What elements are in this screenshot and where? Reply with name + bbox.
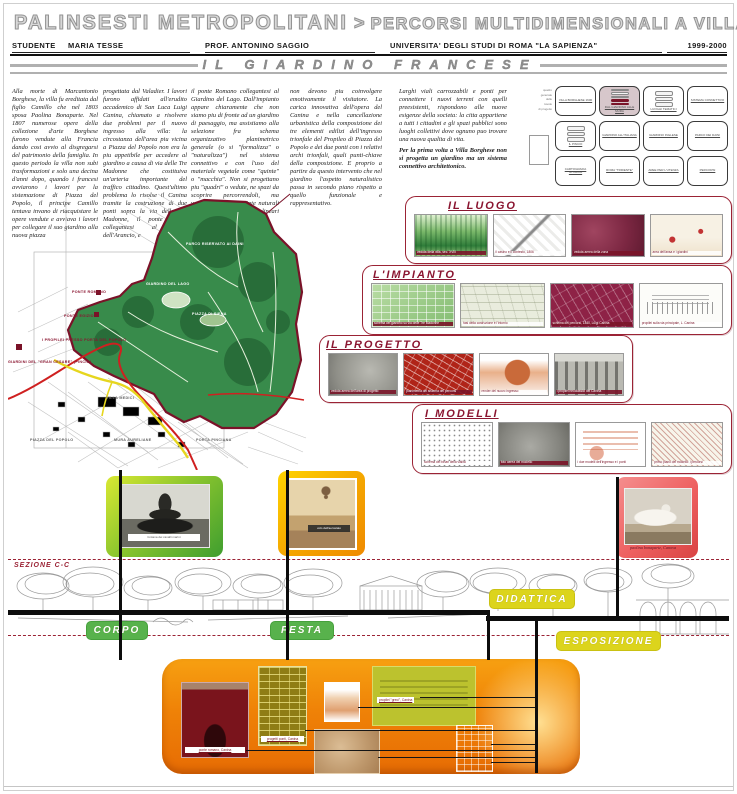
balloon-photo bbox=[287, 478, 357, 550]
strip-image: propilei sulla via principale, L. Canina bbox=[639, 283, 723, 328]
nav-card[interactable]: GIARDINO ALL'ITALIANA bbox=[599, 121, 640, 151]
nav-card[interactable]: LUOGHI TEMATICI bbox=[643, 86, 684, 116]
strip-image-caption: veduta della villa, sec. XVIII bbox=[416, 251, 486, 255]
fountain-caption: fontana dei cavalli marini bbox=[128, 534, 200, 541]
strip-image-caption: area dell'ansa e i giardini bbox=[652, 251, 722, 255]
intro-column-5: Larghi viali carrozzabili e ponti per co… bbox=[399, 88, 507, 171]
map-label: VILLA MEDICI bbox=[106, 396, 134, 400]
student-cell: STUDENTE MARIA TESSE bbox=[12, 41, 190, 53]
intro-column-5b: Per la prima volta a Villa Borghese non … bbox=[399, 147, 507, 171]
strip-image-caption: i due modelli dell'ingresso e i ponti bbox=[577, 461, 645, 465]
nav-card[interactable]: PARCO DEI DAINI bbox=[687, 121, 728, 151]
pill-festa: FESTA bbox=[270, 621, 334, 640]
nav-card-label: VILLA BORGHESE 1600 bbox=[559, 99, 592, 102]
strip-thumbs: schema del giardino su via delle Tre Mad… bbox=[371, 283, 723, 328]
professor-cell: PROF. ANTONINO SAGGIO bbox=[205, 41, 375, 53]
pill-didattica: DIDATTICA bbox=[489, 589, 575, 609]
strip-image-caption: render del nuovo ingresso bbox=[481, 390, 547, 394]
nav-card-label: DAL GIARDINO ALLE MURA bbox=[602, 106, 637, 113]
credits-row: STUDENTE MARIA TESSE PROF. ANTONINO SAGG… bbox=[0, 41, 737, 55]
strip-image: foto aerea del modello bbox=[498, 422, 570, 467]
strip-image-caption: planimetria del sistema dei percorsi bbox=[405, 390, 471, 394]
nav-card[interactable]: SISTEMA CONNETTIVO bbox=[687, 86, 728, 116]
plans-caption: progetti ponti, Canina bbox=[261, 736, 304, 742]
nav-card[interactable]: VILLA BORGHESE 1600 bbox=[555, 86, 596, 116]
plans-image: progetti ponti, Canina bbox=[258, 666, 307, 746]
map-label: PONTE ROMANO bbox=[72, 290, 106, 294]
guide-line-vertical bbox=[119, 470, 122, 660]
fragment-image bbox=[324, 682, 360, 722]
guide-line-vertical bbox=[616, 477, 619, 620]
map-label: PIAZZA DI SIENA bbox=[192, 312, 227, 316]
bottom-rule bbox=[4, 786, 733, 787]
strip-image: veduta aerea dell'area di progetto bbox=[328, 353, 398, 396]
connector-line bbox=[246, 750, 537, 751]
strip-image-caption: fasi della costruzione e l'intorno bbox=[462, 322, 542, 326]
map-label: PARCO RISERVATO AI DAINI bbox=[186, 242, 244, 246]
strip-image-caption: veduta aerea dell'area di progetto bbox=[330, 390, 396, 394]
strip-thumbs: veduta della villa, sec. XVIIIil casino … bbox=[414, 214, 723, 257]
nav-card-label: IL PINCIO bbox=[569, 143, 583, 146]
guide-line-vertical bbox=[286, 470, 289, 660]
nav-card[interactable]: PERCORSI bbox=[687, 156, 728, 186]
map-label: GIARDINI DEL "GRAN CESARE" (PINCIO) bbox=[8, 360, 91, 364]
student-label: STUDENTE bbox=[12, 41, 56, 50]
strip-image: planimetria del sistema dei percorsi bbox=[403, 353, 473, 396]
student-name: MARIA TESSE bbox=[68, 41, 123, 50]
intro-column-4: non devono piu coinvolgere emotivamente … bbox=[290, 88, 382, 208]
nav-card-label: GIARDINO ALL'ITALIANA bbox=[602, 134, 637, 137]
map-label: MURA AURELIANE bbox=[114, 438, 152, 442]
connector-line bbox=[491, 762, 537, 763]
title-separator: > bbox=[354, 13, 365, 33]
balloon-caption: volo dell'aerostato bbox=[308, 525, 350, 532]
arch-caption: ponte romano, Canina bbox=[185, 747, 245, 753]
nav-card[interactable]: ROMA "TRIDENTE" bbox=[599, 156, 640, 186]
nav-card[interactable]: DAL GIARDINO ALLE MURA bbox=[599, 86, 640, 116]
nav-grid-side-caption: quadrogeneraledelletavoledi progetto bbox=[522, 88, 552, 111]
strip-image: il casino e il contesto, 1806 bbox=[493, 214, 567, 257]
title-right: PERCORSI MULTIDIMENSIONALI A VILLA BORGH… bbox=[370, 15, 737, 33]
nav-card-label: ROMA "TRIDENTE" bbox=[606, 169, 633, 172]
subtitle-rule-left bbox=[10, 64, 198, 67]
connector-line bbox=[358, 707, 537, 708]
poster-board: PALINSESTI METROPOLITANI>PERCORSI MULTID… bbox=[0, 0, 737, 794]
strip-title: IL LUOGO bbox=[448, 200, 517, 212]
statue-caption: paolina bonaparte, Canova bbox=[630, 545, 676, 550]
strip-image-caption: schema dei binari della vialita bbox=[423, 461, 491, 465]
plan-outline-image bbox=[456, 725, 493, 772]
subtitle-rule-right bbox=[540, 64, 727, 67]
connector-line bbox=[378, 757, 537, 758]
nav-grid-side-box bbox=[529, 135, 549, 165]
strip-image-caption: foto aerea del modello bbox=[500, 461, 568, 465]
subtitle-rule-bottom bbox=[10, 72, 727, 74]
strip-image: schema del giardino su via delle Tre Mad… bbox=[371, 283, 455, 328]
title-left: PALINSESTI METROPOLITANI bbox=[14, 12, 348, 34]
pill-esposizione: ESPOSIZIONE bbox=[556, 631, 661, 651]
strip-il-luogo: IL LUOGO veduta della villa, sec. XVIIIi… bbox=[405, 196, 732, 264]
connector-line bbox=[305, 730, 537, 731]
nav-card-label: PARCO DEI DAINI bbox=[695, 134, 720, 137]
connector-line bbox=[491, 744, 537, 745]
map-label: GIARDINO DEL LAGO bbox=[146, 282, 190, 286]
map-label: PIAZZA DEL POPOLO bbox=[30, 438, 73, 442]
strip-title: IL PROGETTO bbox=[326, 339, 422, 351]
nav-card-label: LUOGHI TEMATICI bbox=[650, 108, 676, 111]
nav-card-label: SISTEMA CONNETTIVO bbox=[691, 99, 725, 102]
strip-image-caption: primo piano del modello: i percorsi bbox=[653, 461, 721, 465]
guide-line-vertical bbox=[487, 610, 490, 660]
strip-thumbs: schema dei binari della vialitafoto aere… bbox=[421, 422, 723, 467]
timeline-bar-left bbox=[8, 610, 490, 615]
timeline-bar-right bbox=[486, 616, 729, 621]
strip-image: schema dei binari della vialita bbox=[421, 422, 493, 467]
pill-corpo: CORPO bbox=[86, 621, 148, 640]
nav-card[interactable]: IL PINCIO bbox=[555, 121, 596, 151]
strip-image: i due modelli dell'ingresso e i ponti bbox=[575, 422, 647, 467]
map-label: I PROPILEI PRESSO PORTA DEL POPOLO bbox=[42, 338, 127, 342]
page-title: PALINSESTI METROPOLITANI>PERCORSI MULTID… bbox=[14, 12, 726, 35]
aerial-image bbox=[314, 729, 380, 774]
strip-image-caption: propilei sulla via principale, L. Canina bbox=[641, 322, 721, 326]
dashed-line-top bbox=[8, 559, 729, 560]
photo-frame-statue: paolina bonaparte, Canova bbox=[616, 477, 698, 558]
map-label: PORTA PINCIANA bbox=[196, 438, 232, 442]
intro-column-5a: Larghi viali carrozzabili e ponti per co… bbox=[399, 88, 507, 144]
strip-image: veduta aerea della zona bbox=[571, 214, 645, 257]
nav-card-label: AREE PER L'UTENZA bbox=[648, 169, 678, 172]
elevations-caption: propilei "greci", Canina bbox=[377, 697, 414, 703]
map-drawing bbox=[8, 192, 308, 470]
elevations-image: propilei "greci", Canina bbox=[372, 666, 476, 726]
strip-image-caption: i propilei neoclassici del Canina bbox=[556, 390, 622, 394]
connector-line bbox=[420, 697, 537, 698]
university-cell: UNIVERSITA' DEGLI STUDI DI ROMA "LA SAPI… bbox=[390, 41, 662, 53]
strip-image: i propilei neoclassici del Canina bbox=[554, 353, 624, 396]
strip-image: area dell'ansa e i giardini bbox=[650, 214, 724, 257]
photo-frame-fountain: fontana dei cavalli marini bbox=[106, 476, 223, 557]
photo-frame-balloon: volo dell'aerostato bbox=[278, 471, 365, 556]
nav-card-label: CARTOGRAFIA STORICA bbox=[558, 168, 593, 175]
strip-image-caption: schema dei percorsi, 1840, Luigi Canina bbox=[552, 322, 632, 326]
strip-image-caption: veduta aerea della zona bbox=[573, 251, 643, 255]
board-index-grid: VILLA BORGHESE 1600DAL GIARDINO ALLE MUR… bbox=[555, 86, 728, 186]
strip-image-caption: il casino e il contesto, 1806 bbox=[495, 251, 565, 255]
arch-image: ponte romano, Canina bbox=[181, 682, 249, 758]
nav-card[interactable]: CARTOGRAFIA STORICA bbox=[555, 156, 596, 186]
villa-borghese-map: PONTE ROMANOPONTE EGIZIOGIARDINO DEL LAG… bbox=[8, 192, 308, 470]
nav-card-label: GIARDINO INGLESE bbox=[649, 134, 678, 137]
strip-image: render del nuovo ingresso bbox=[479, 353, 549, 396]
nav-card[interactable]: GIARDINO INGLESE bbox=[643, 121, 684, 151]
section-label: SEZIONE C-C bbox=[14, 562, 70, 569]
guide-line-vertical bbox=[535, 617, 538, 773]
strip-l-impianto: L'IMPIANTO schema del giardino su via de… bbox=[362, 265, 732, 335]
lake-shape bbox=[162, 292, 190, 308]
nav-card[interactable]: AREE PER L'UTENZA bbox=[643, 156, 684, 186]
nav-card-label: PERCORSI bbox=[700, 169, 716, 172]
strip-image: fasi della costruzione e l'intorno bbox=[460, 283, 544, 328]
strip-il-progetto: IL PROGETTO veduta aerea dell'area di pr… bbox=[319, 335, 633, 403]
strip-image-caption: schema del giardino su via delle Tre Mad… bbox=[373, 322, 453, 326]
strip-thumbs: veduta aerea dell'area di progettoplanim… bbox=[328, 353, 624, 396]
strip-title: I MODELLI bbox=[425, 408, 499, 420]
strip-i-modelli: I MODELLI schema dei binari della vialit… bbox=[412, 404, 732, 474]
strip-title: L'IMPIANTO bbox=[373, 269, 456, 281]
board-subtitle: IL GIARDINO FRANCESE bbox=[200, 57, 540, 72]
strip-image: primo piano del modello: i percorsi bbox=[651, 422, 723, 467]
year-cell: 1999-2000 bbox=[667, 41, 727, 53]
strip-image: schema dei percorsi, 1840, Luigi Canina bbox=[550, 283, 634, 328]
header-rule bbox=[10, 54, 727, 56]
statue-photo bbox=[624, 488, 692, 545]
map-label: PONTE EGIZIO bbox=[64, 314, 94, 318]
strip-image: veduta della villa, sec. XVIII bbox=[414, 214, 488, 257]
